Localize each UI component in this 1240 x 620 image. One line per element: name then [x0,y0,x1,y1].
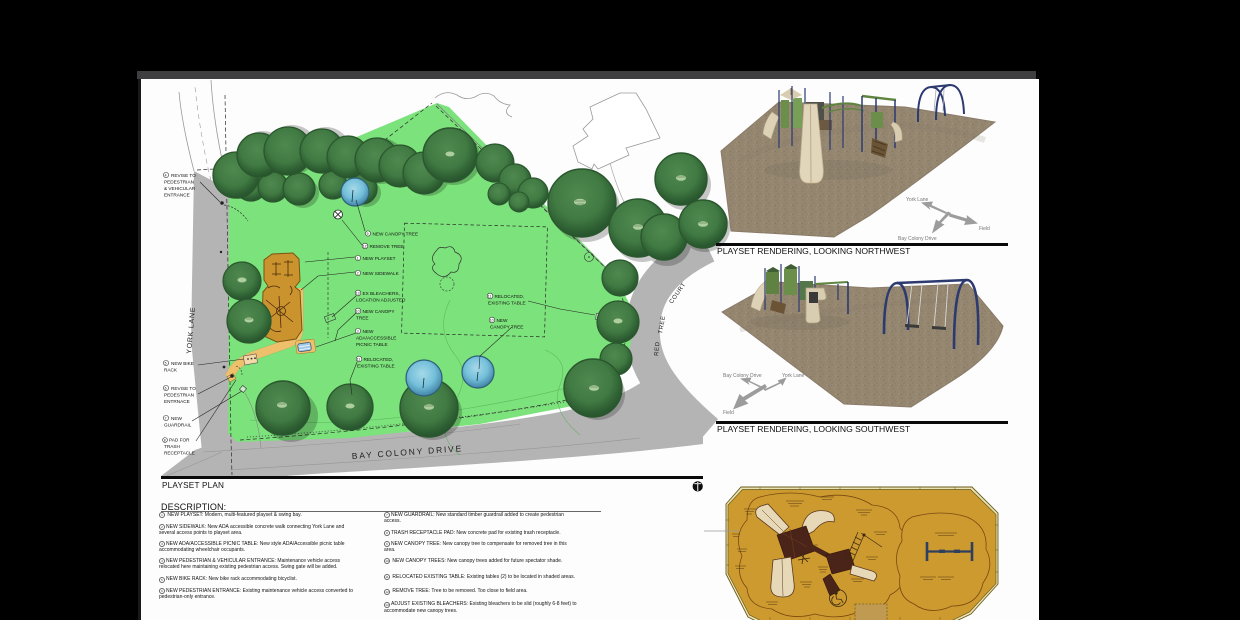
svg-text:NEW: NEW [497,318,509,323]
svg-text:EXISTING TABLE: EXISTING TABLE [488,301,526,306]
svg-text:2: 2 [357,272,359,276]
svg-text:NEW: NEW [171,416,183,421]
svg-text:8: 8 [164,439,166,443]
svg-text:11: 11 [357,358,361,362]
svg-text:Bay Colony Drive: Bay Colony Drive [723,373,762,379]
svg-text:Bay Colony Drive: Bay Colony Drive [898,236,937,242]
svg-text:TRASH: TRASH [164,444,180,449]
svg-text:4: 4 [165,174,167,178]
svg-text:York Lane: York Lane [782,373,805,379]
svg-text:CANOPY TREE: CANOPY TREE [490,325,523,330]
svg-text:NEW SIDEWALK: NEW SIDEWALK [363,271,400,276]
svg-text:PEDESTRIAN: PEDESTRIAN [164,180,194,185]
svg-text:RACK: RACK [164,368,178,373]
svg-text:NEW BIKE: NEW BIKE [171,361,194,366]
svg-text:13: 13 [356,292,360,296]
svg-text:PAD FOR: PAD FOR [169,438,190,443]
svg-text:NEW CANOPY TREE: NEW CANOPY TREE [373,232,419,237]
svg-text:GUARDRAIL: GUARDRAIL [164,423,192,428]
svg-text:ENTRANCE: ENTRANCE [164,193,190,198]
svg-text:TREE: TREE [356,316,369,321]
svg-text:NEW: NEW [363,329,375,334]
svg-text:RECEPTACLE: RECEPTACLE [164,451,195,456]
svg-text:NEW CANOPY: NEW CANOPY [363,309,396,314]
svg-text:York Lane: York Lane [906,197,929,203]
svg-text:6: 6 [165,387,167,391]
svg-text:10: 10 [356,310,360,314]
svg-text:ADA/ACCESSIBLE: ADA/ACCESSIBLE [356,336,396,341]
svg-text:Field: Field [723,410,734,416]
svg-text:NEW PLAYSET: NEW PLAYSET [363,256,396,261]
svg-text:REVISE TO: REVISE TO [171,173,196,178]
svg-text:7: 7 [165,417,167,421]
svg-text:EX BLEACHERS,: EX BLEACHERS, [363,291,400,296]
svg-text:3: 3 [357,330,359,334]
svg-text:Field: Field [979,226,990,232]
svg-text:PICNIC TABLE: PICNIC TABLE [356,342,388,347]
svg-text:10: 10 [490,319,494,323]
svg-text:EXISTING TABLE: EXISTING TABLE [357,364,395,369]
svg-text:LOCATION ADJUSTED: LOCATION ADJUSTED [356,298,406,303]
svg-text:RELOCATED,: RELOCATED, [495,294,525,299]
svg-text:REMOVE TREE: REMOVE TREE [370,244,404,249]
svg-text:9: 9 [367,232,369,236]
svg-text:5: 5 [165,362,167,366]
svg-text:1: 1 [357,257,359,261]
svg-text:RELOCATED,: RELOCATED, [364,357,394,362]
svg-text:REVISE TO: REVISE TO [171,386,196,391]
svg-text:ENTRNACE: ENTRNACE [164,399,190,404]
svg-text:& VEHICULAR: & VEHICULAR [164,186,196,191]
svg-text:11: 11 [488,295,492,299]
svg-text:PEDESTRIAN: PEDESTRIAN [164,393,194,398]
svg-text:12: 12 [363,245,367,249]
